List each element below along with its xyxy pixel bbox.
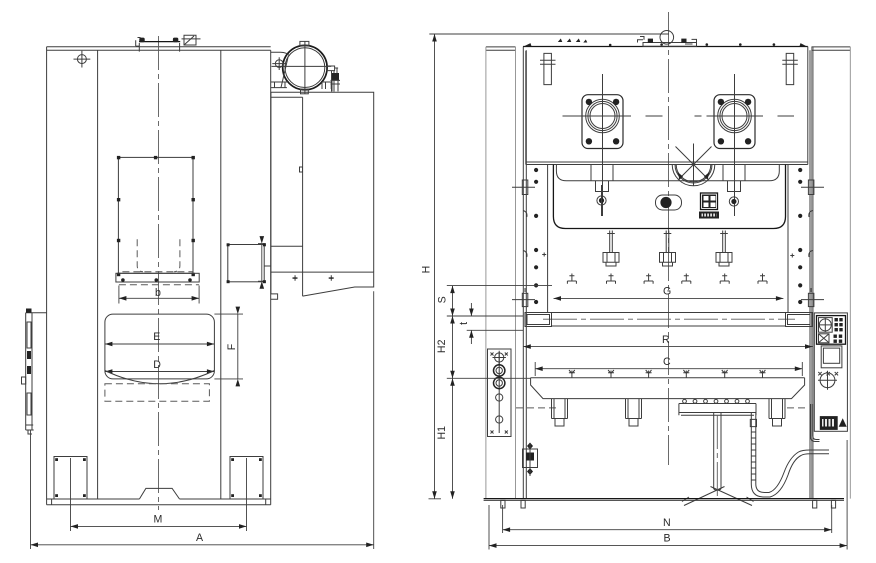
svg-text:b: b xyxy=(155,287,161,299)
svg-text:F: F xyxy=(226,343,238,350)
svg-text:E: E xyxy=(153,331,160,343)
svg-text:N: N xyxy=(663,517,671,529)
svg-text:D: D xyxy=(153,359,161,371)
svg-text:H2: H2 xyxy=(436,339,448,353)
svg-text:S: S xyxy=(436,296,448,303)
svg-text:A: A xyxy=(196,532,204,544)
svg-text:B: B xyxy=(664,533,671,545)
svg-text:G: G xyxy=(663,286,671,298)
svg-text:C: C xyxy=(663,356,671,368)
svg-text:M: M xyxy=(154,514,163,526)
svg-text:R: R xyxy=(662,334,670,346)
svg-text:t: t xyxy=(458,322,470,325)
svg-text:H: H xyxy=(421,266,433,274)
svg-text:H1: H1 xyxy=(436,426,448,440)
